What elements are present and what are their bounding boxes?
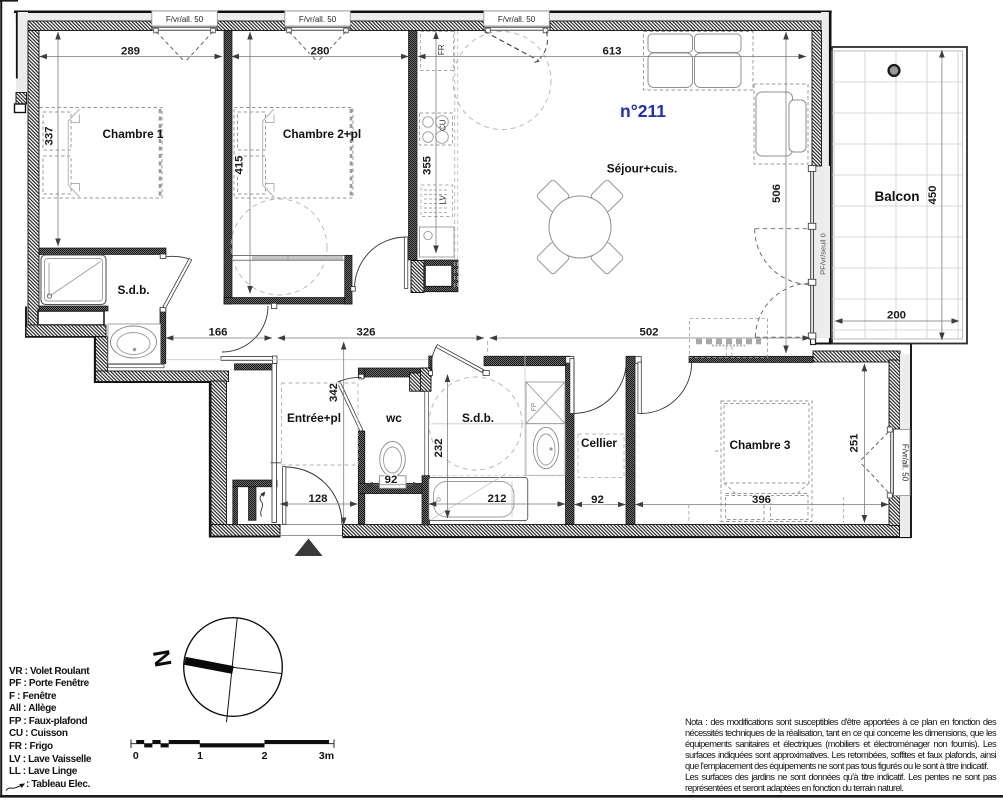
svg-text:502: 502 xyxy=(639,327,658,339)
svg-text:Chambre 1: Chambre 1 xyxy=(103,127,164,141)
svg-text:FP: FP xyxy=(531,402,538,411)
svg-text:F/vr/all. 50: F/vr/all. 50 xyxy=(166,15,204,24)
svg-text:166: 166 xyxy=(208,327,227,339)
svg-text:613: 613 xyxy=(602,46,621,58)
svg-text:212: 212 xyxy=(487,493,506,505)
svg-text:280: 280 xyxy=(310,46,329,58)
svg-text:F/vr/all. 50: F/vr/all. 50 xyxy=(299,15,337,24)
svg-text:232: 232 xyxy=(433,438,445,457)
svg-text:N: N xyxy=(148,648,177,669)
svg-text:Chambre 3: Chambre 3 xyxy=(730,438,791,452)
svg-text:wc: wc xyxy=(385,411,402,425)
svg-text:n°211: n°211 xyxy=(620,101,666,121)
svg-text:92: 92 xyxy=(591,494,604,506)
svg-text:LV: LV xyxy=(439,195,448,205)
svg-text:415: 415 xyxy=(234,155,246,175)
svg-text:1: 1 xyxy=(197,750,203,762)
svg-text:200: 200 xyxy=(887,310,906,322)
svg-text:251: 251 xyxy=(849,433,861,453)
svg-text:342: 342 xyxy=(328,383,340,402)
svg-text:326: 326 xyxy=(356,327,375,339)
svg-text:Balcon: Balcon xyxy=(874,189,919,204)
svg-text:FR: FR xyxy=(437,44,446,55)
svg-text:355: 355 xyxy=(422,155,434,175)
svg-text:128: 128 xyxy=(308,493,327,505)
svg-text:2: 2 xyxy=(262,750,268,762)
svg-text:396: 396 xyxy=(752,494,771,506)
svg-text:S.d.b.: S.d.b. xyxy=(117,283,149,297)
svg-text:92: 92 xyxy=(385,474,398,486)
svg-text:PF/vr/seuil 0: PF/vr/seuil 0 xyxy=(819,233,828,275)
svg-text:Entrée+pl: Entrée+pl xyxy=(287,411,341,425)
svg-text:F/vr/all. 50: F/vr/all. 50 xyxy=(901,444,910,482)
svg-text:289: 289 xyxy=(121,46,140,58)
svg-text:CU: CU xyxy=(439,119,448,131)
svg-text:Cellier: Cellier xyxy=(581,436,617,450)
svg-text:506: 506 xyxy=(771,184,783,203)
svg-text:3m: 3m xyxy=(319,750,334,762)
svg-text:Séjour+cuis.: Séjour+cuis. xyxy=(607,162,677,176)
svg-text:Chambre 2+pl: Chambre 2+pl xyxy=(283,127,361,141)
svg-text:0: 0 xyxy=(133,750,139,762)
svg-text:S.d.b.: S.d.b. xyxy=(462,411,494,425)
svg-text:450: 450 xyxy=(927,185,939,204)
svg-text:F/vr/all. 50: F/vr/all. 50 xyxy=(498,15,536,24)
svg-text:337: 337 xyxy=(44,126,56,145)
